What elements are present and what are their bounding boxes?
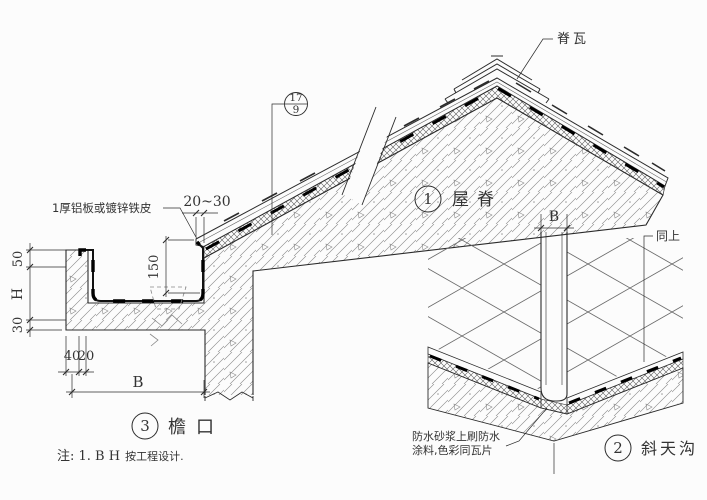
design-note-suffix: 按工程设计. [125, 449, 184, 463]
dim-20-30-label: 20~30 [183, 194, 230, 210]
detail-1-name: 屋脊 [452, 190, 502, 210]
ridge-tile-leader [517, 39, 553, 79]
ridge-tile-label: 脊瓦 [557, 32, 589, 47]
dim-20-label: 20 [78, 349, 95, 364]
detail-1-number: 1 [423, 190, 433, 208]
ref-bubble-top: 17 [289, 92, 302, 104]
dim-30-label: 30 [11, 317, 26, 334]
gutter-flashing [80, 242, 203, 301]
dim-150 [163, 236, 200, 297]
detail-valley: B 同上 防水砂浆上刷防水 涂料,色彩同瓦片 2 斜天沟 [412, 209, 698, 474]
ref-bubble-bottom: 9 [293, 104, 300, 116]
dim-150-label: 150 [147, 255, 162, 280]
detail-2-title: 2 斜天沟 [605, 435, 698, 461]
detail-3-number: 3 [140, 417, 150, 435]
dim-H-label: H [10, 288, 26, 300]
design-note-prefix: 注: 1. B H [57, 449, 120, 464]
detail-3-title: 3 檐口 [132, 413, 224, 439]
detail-2-name: 斜天沟 [641, 439, 698, 458]
waterproof-note-line2: 涂料,色彩同瓦片 [412, 443, 493, 457]
dim-50-label: 50 [11, 251, 26, 268]
dim-50-H-30 [26, 243, 66, 337]
design-note: 注: 1. B H 按工程设计. [57, 445, 184, 464]
drawing-canvas: 50 H 30 40 20 B 150 20~30 1厚铝板或镀锌铁 [0, 0, 707, 500]
same-as-above-label: 同上 [656, 229, 680, 243]
cad-drawing-sheet: 50 H 30 40 20 B 150 20~30 1厚铝板或镀锌铁 [0, 0, 707, 500]
dim-B-eaves-label: B [132, 373, 143, 391]
dim-B-valley-label: B [549, 209, 559, 225]
detail-2-number: 2 [613, 439, 623, 457]
gutter-flashing-dashes [80, 242, 203, 301]
waterproof-note-line1: 防水砂浆上刷防水 [412, 429, 500, 443]
detail-3-name: 檐口 [168, 417, 224, 438]
flashing-label: 1厚铝板或镀锌铁皮 [52, 201, 152, 215]
